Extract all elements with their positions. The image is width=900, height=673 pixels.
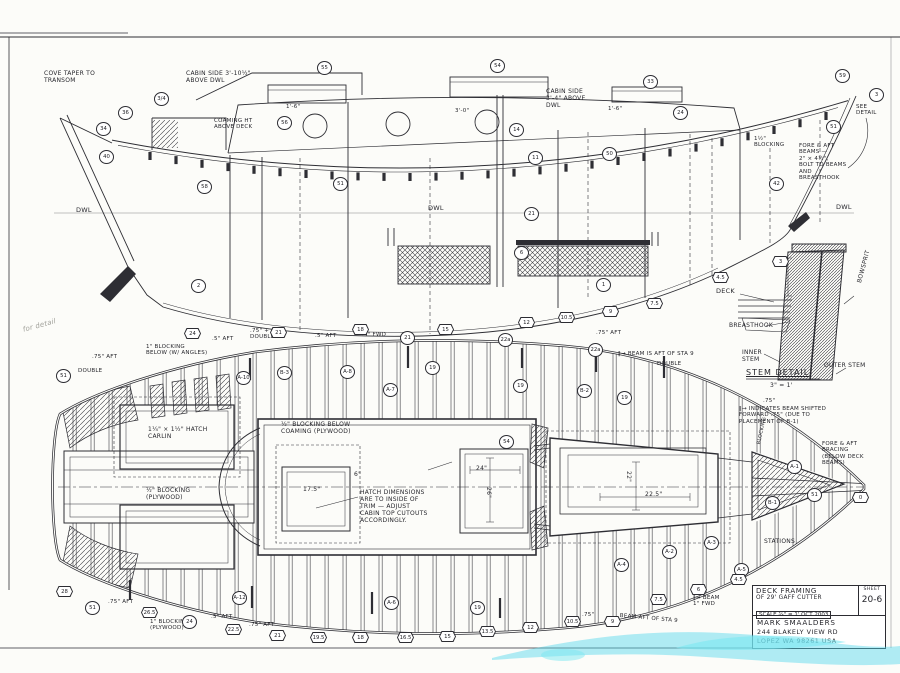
profile-beam-number-marker: 59 [835, 69, 850, 83]
plan-annotation: ‖→ INDICATES BEAM SHIFTED FORWARD .75" (… [739, 406, 826, 425]
plan-annotation: .5" AFT [315, 333, 336, 339]
plan-annotation: .75" AFT [249, 622, 274, 628]
plan-annotation: .75" + DOUBLE [250, 328, 274, 341]
plan-annotation: .75" AFT [92, 354, 117, 360]
plan-beam-number-marker: 22a [498, 333, 513, 347]
sheet-number-cell: SHEET 20-6 [859, 586, 885, 615]
profile-annotation: SEE DETAIL [856, 104, 877, 117]
profile-beam-number-marker: 36 [118, 106, 133, 120]
profile-annotation: CABIN SIDE 3'-10½" ABOVE DWL [186, 70, 251, 84]
plan-annotation: STATIONS [764, 538, 795, 545]
profile-beam-number-marker: 34 [96, 122, 111, 136]
plan-beam-number-marker: B-3 [277, 366, 292, 380]
plan-annotation: 1" BLOCKING BELOW (W/ ANGLES) [146, 344, 207, 357]
profile-annotation: DWL [428, 205, 444, 213]
plan-station-marker: 15 [439, 631, 456, 642]
profile-annotation: 1½" BLOCKING [754, 136, 784, 149]
plan-annotation: ‖→ BEAM IS AFT OF STA 9 [618, 351, 694, 357]
sheet-number: 20-6 [859, 595, 885, 605]
plan-station-marker: 9 [604, 616, 621, 627]
blueprint-sheet: DECK FRAMING OF 29' GAFF CUTTER SCALE ¾"… [0, 0, 900, 673]
plan-annotation: 17.5" [303, 486, 320, 493]
designer-address-1: 244 BLAKELY VIEW RD [753, 627, 885, 636]
plan-annotation: 1¼" × 1½" HATCH CARLIN [148, 426, 207, 440]
profile-station-marker: 9 [602, 306, 619, 317]
title-block: DECK FRAMING OF 29' GAFF CUTTER SCALE ¾"… [752, 585, 886, 649]
profile-station-marker: 10.5 [558, 312, 575, 323]
plan-station-marker: 28 [56, 586, 73, 597]
profile-beam-number-marker: 54 [490, 59, 505, 73]
plan-beam-number-marker: A-4 [614, 558, 629, 572]
plan-beam-number-marker: B-1 [765, 496, 780, 510]
plan-beam-number-marker: 24 [182, 615, 197, 629]
stem-detail-label: OUTER STEM [824, 362, 866, 369]
plan-annotation: .5" AFT [211, 614, 232, 620]
plan-annotation: 6" [354, 471, 361, 478]
plan-annotation: 22.5" [645, 491, 662, 498]
profile-beam-number-marker: 40 [99, 150, 114, 164]
profile-annotation: COVE TAPER TO TRANSOM [44, 70, 95, 84]
plan-beam-number-marker: A-10 [236, 371, 251, 385]
profile-annotation: 3'-0" [455, 108, 469, 114]
plan-beam-number-marker: B-2 [577, 384, 592, 398]
stem-detail-scale: 3" = 1' [770, 382, 793, 389]
plan-annotation: .75" AFT [108, 599, 133, 605]
plan-station-marker: 0 [852, 492, 869, 503]
profile-beam-number-marker: 42 [769, 177, 784, 191]
profile-annotation: DWL [76, 207, 92, 215]
drawing-title: DECK FRAMING [756, 587, 856, 595]
stem-detail-label: DECK [716, 288, 735, 296]
plan-station-marker: 26.5 [141, 607, 158, 618]
stem-detail-label: INNER STEM [742, 349, 762, 363]
sheet-label: SHEET [859, 587, 885, 592]
plan-beam-number-marker: A-6 [384, 596, 399, 610]
profile-station-marker: 3 [772, 256, 789, 267]
plan-beam-number-marker: A-2 [662, 545, 677, 559]
profile-station-marker: 4.5 [712, 272, 729, 283]
plan-station-marker: 18 [352, 324, 369, 335]
profile-beam-number-marker: 6 [514, 246, 529, 260]
plan-annotation: ½" BLOCKING (PLYWOOD) [146, 487, 190, 501]
profile-station-marker: 7.5 [646, 298, 663, 309]
designer-address-2: LOPEZ WA 98261 USA [753, 636, 885, 645]
plan-station-marker: 7.5 [650, 594, 667, 605]
plan-beam-number-marker: A-3 [704, 536, 719, 550]
plan-annotation: .75" AFT [596, 330, 621, 336]
stem-detail-title: STEM DETAIL [746, 368, 809, 377]
profile-beam-number-marker: 51 [333, 177, 348, 191]
plan-annotation: HATCH DIMENSIONS ARE TO INSIDE OF TRIM —… [360, 489, 428, 524]
plan-annotation: ½" BLOCKING BELOW COAMING (PLYWOOD) [281, 421, 351, 435]
profile-beam-number-marker: 3/4 [154, 92, 169, 106]
plan-station-marker: 12 [522, 622, 539, 633]
profile-beam-number-marker: 55 [317, 61, 332, 75]
plan-annotation: DOUBLE [78, 368, 102, 374]
plan-annotation: FORE & AFT BRACING (BELOW DECK BEAMS) [822, 441, 864, 467]
plan-beam-number-marker: 19 [470, 601, 485, 615]
profile-beam-number-marker: 14 [509, 123, 524, 137]
plan-beam-number-marker: A-1 [787, 460, 802, 474]
profile-beam-number-marker: 21 [524, 207, 539, 221]
profile-beam-number-marker: 51 [826, 120, 841, 134]
plan-station-marker: 18 [352, 632, 369, 643]
plan-station-marker: 19.5 [310, 632, 327, 643]
plan-annotation: ‖→ BEAM 1" FWD [693, 595, 720, 608]
plan-beam-number-marker: A-7 [383, 383, 398, 397]
plan-beam-number-marker: 51 [85, 601, 100, 615]
plan-annotation: DOUBLE [657, 361, 681, 367]
plan-station-marker: 4.5 [730, 574, 747, 585]
plan-station-marker: 12 [518, 317, 535, 328]
profile-beam-number-marker: 3 [869, 88, 884, 102]
plan-beam-number-marker: 54 [499, 435, 514, 449]
plan-annotation: .75" [582, 612, 594, 618]
profile-beam-number-marker: 1 [596, 278, 611, 292]
plan-beam-number-marker: A-12 [232, 591, 247, 605]
plan-beam-number-marker: 51 [807, 488, 822, 502]
profile-beam-number-marker: 2 [191, 279, 206, 293]
title-block-upper: DECK FRAMING OF 29' GAFF CUTTER SCALE ¾"… [753, 586, 885, 616]
plan-station-marker: 21 [270, 327, 287, 338]
plan-annotation: 24" [476, 465, 487, 472]
plan-beam-number-marker: 21 [400, 331, 415, 345]
plan-station-marker: 10.5 [564, 616, 581, 627]
profile-beam-number-marker: 24 [673, 106, 688, 120]
title-block-left: DECK FRAMING OF 29' GAFF CUTTER SCALE ¾"… [753, 586, 859, 615]
stem-detail-label: BREASTHOOK [729, 322, 773, 329]
profile-annotation: FORE & AFT BEAMS — 2" × 4½", BOLT TO BEA… [799, 143, 846, 182]
plan-station-marker: 21 [269, 630, 286, 641]
profile-beam-number-marker: 56 [277, 116, 292, 130]
drawing-subtitle: OF 29' GAFF CUTTER [756, 595, 856, 601]
plan-beam-number-marker: 19 [617, 391, 632, 405]
plan-annotation: .75" [763, 398, 775, 404]
plan-beam-number-marker: 19 [425, 361, 440, 375]
profile-beam-number-marker: 50 [602, 147, 617, 161]
plan-station-marker: 13.5 [479, 626, 496, 637]
plan-station-marker: 22.5 [225, 624, 242, 635]
profile-beam-number-marker: 58 [197, 180, 212, 194]
plan-station-marker: 15 [437, 324, 454, 335]
plan-beam-number-marker: 22a [588, 343, 603, 357]
profile-annotation: DWL [836, 204, 852, 212]
drawing-canvas [0, 0, 900, 673]
profile-annotation: 1'-6" [286, 104, 300, 110]
profile-beam-number-marker: 11 [528, 151, 543, 165]
plan-beam-number-marker: 51 [56, 369, 71, 383]
plan-station-marker: 16.5 [397, 632, 414, 643]
profile-annotation: CABIN SIDE 3'-4" ABOVE DWL [546, 88, 586, 109]
profile-beam-number-marker: 33 [643, 75, 658, 89]
designer-name: MARK SMAALDERS [753, 616, 885, 627]
plan-annotation: .5" AFT [212, 336, 233, 342]
plan-annotation: 26" [485, 487, 492, 498]
plan-beam-number-marker: 19 [513, 379, 528, 393]
profile-annotation: COAMING HT ABOVE DECK [214, 118, 252, 131]
plan-beam-number-marker: A-8 [340, 365, 355, 379]
plan-annotation: 22" [625, 471, 632, 482]
plan-station-marker: 6 [690, 584, 707, 595]
plan-station-marker: 24 [184, 328, 201, 339]
profile-annotation: 1'-6" [608, 106, 622, 112]
